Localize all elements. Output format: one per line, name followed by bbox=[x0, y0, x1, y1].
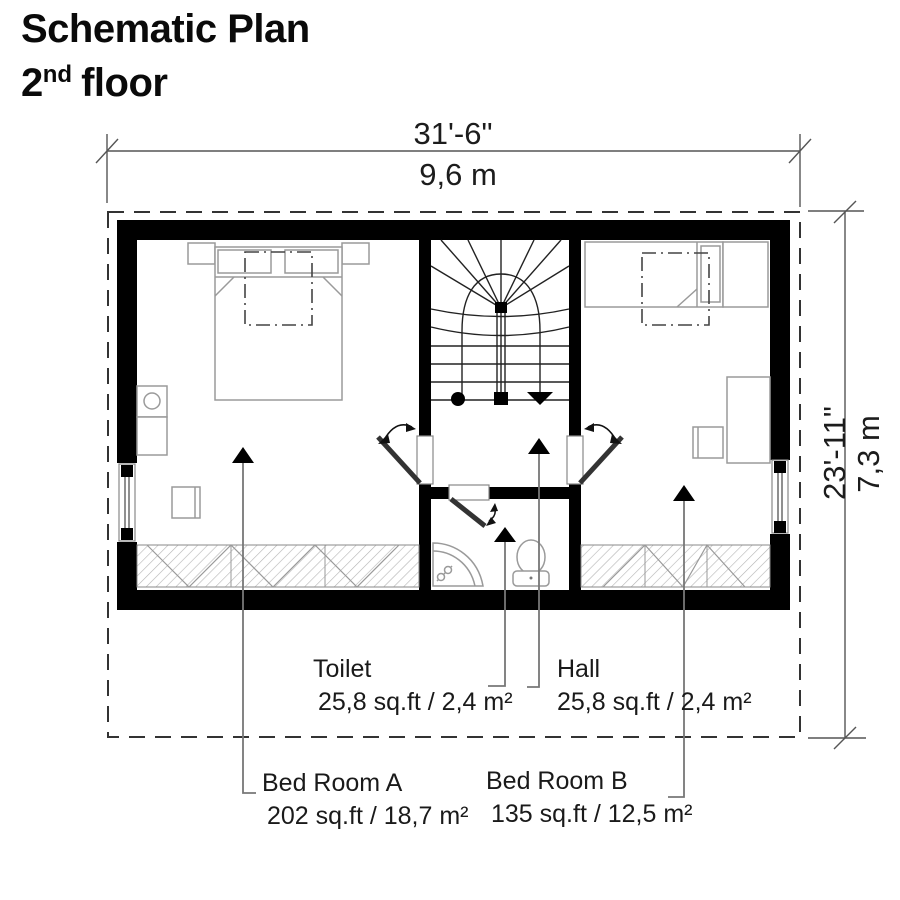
drawing-title: Schematic Plan 2ndfloor bbox=[21, 6, 310, 106]
room-area-bedroom-a: 202 sq.ft / 18,7 m² bbox=[267, 802, 469, 831]
room-area-toilet: 25,8 sq.ft / 2,4 m² bbox=[318, 688, 513, 717]
depth-dimension-imperial: 23'-11" bbox=[817, 343, 853, 563]
width-dimension-metric: 9,6 m bbox=[308, 157, 608, 193]
door-frame-right bbox=[567, 436, 583, 484]
closet bbox=[723, 242, 768, 307]
stair-newel-top bbox=[495, 302, 507, 313]
pillow bbox=[701, 246, 720, 302]
room-label-toilet: Toilet bbox=[313, 655, 371, 684]
door-frame-left bbox=[417, 436, 433, 484]
room-label-bedroom-a: Bed Room A bbox=[262, 769, 402, 798]
title-line2: 2ndfloor bbox=[21, 52, 310, 106]
wc-bowl bbox=[517, 540, 545, 574]
width-dimension-imperial: 31'-6" bbox=[303, 116, 603, 152]
stair-newel-bottom bbox=[494, 392, 508, 405]
chair-a bbox=[172, 487, 200, 518]
room-label-hall: Hall bbox=[557, 655, 600, 684]
nightstand-right bbox=[342, 243, 369, 264]
door-frame-toilet bbox=[449, 485, 489, 500]
low-ceiling-hatch-right bbox=[581, 545, 770, 587]
window-left bbox=[117, 463, 137, 542]
window-right bbox=[770, 460, 790, 534]
room-area-hall: 25,8 sq.ft / 2,4 m² bbox=[557, 688, 752, 717]
desk bbox=[727, 377, 770, 463]
low-ceiling-hatch-left bbox=[137, 545, 419, 587]
stair-post-marker bbox=[451, 392, 465, 406]
cabinet bbox=[137, 417, 167, 455]
room-area-bedroom-b: 135 sq.ft / 12,5 m² bbox=[491, 800, 693, 829]
nightstand-left bbox=[188, 243, 215, 264]
depth-dimension-metric: 7,3 m bbox=[851, 344, 887, 564]
room-label-bedroom-b: Bed Room B bbox=[486, 767, 628, 796]
title-line1: Schematic Plan bbox=[21, 6, 310, 52]
floorplan-canvas: Schematic Plan 2ndfloor 31'-6" 9,6 m 23'… bbox=[0, 0, 900, 900]
